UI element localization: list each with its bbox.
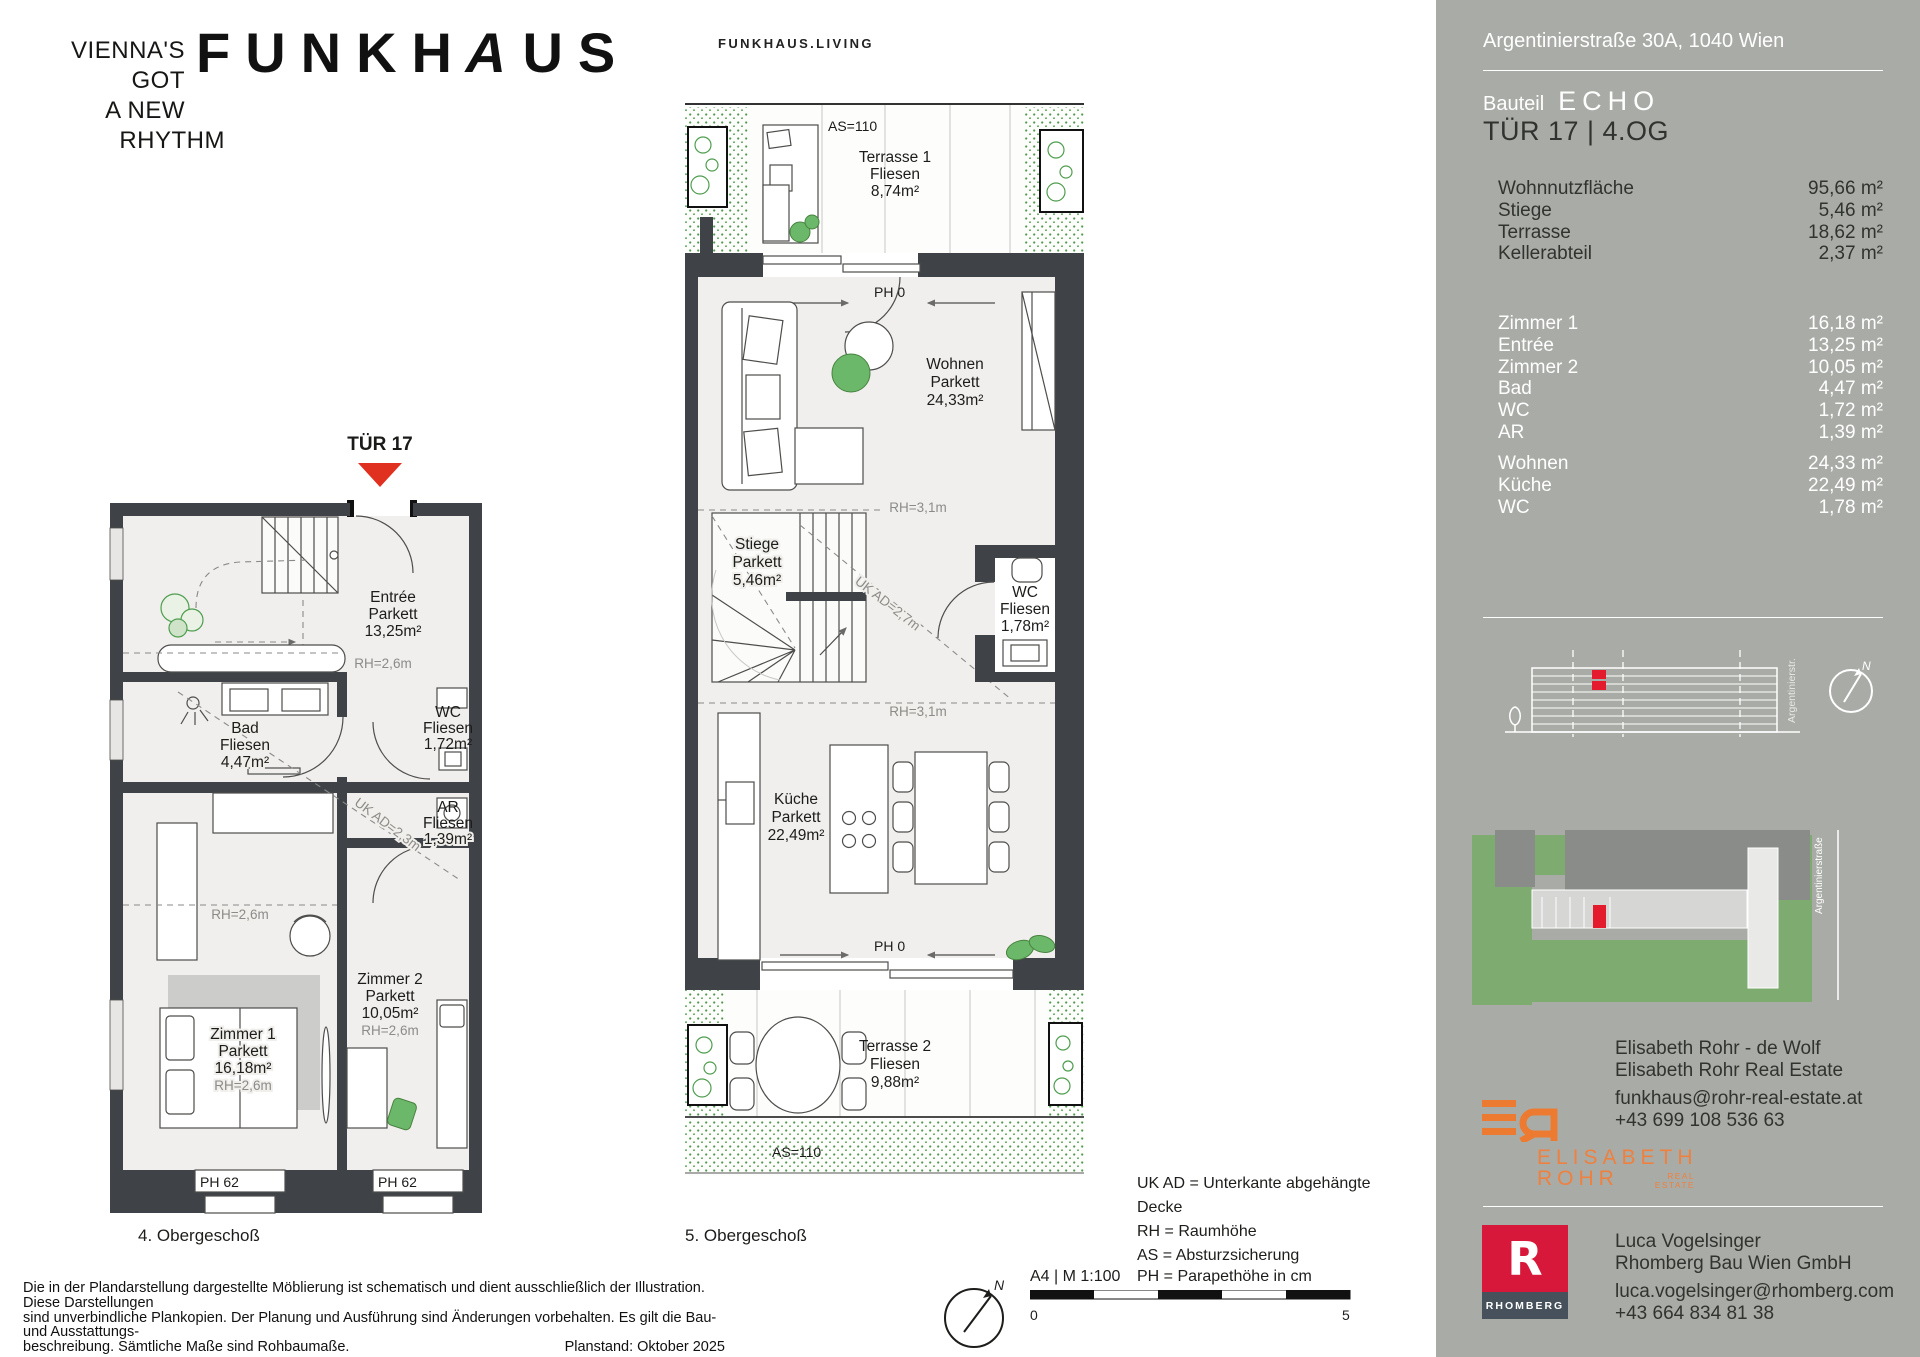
stair-4og xyxy=(262,517,338,593)
contact-name: Elisabeth Rohr - de Wolf xyxy=(1615,1038,1843,1060)
area-label: Stiege xyxy=(1498,200,1552,222)
funkhaus-logo: FUNKHAUS xyxy=(196,20,630,85)
room-label: 13,25m² xyxy=(365,623,422,640)
tuer17-marker-triangle-icon xyxy=(358,463,402,487)
room-label: Fliesen xyxy=(870,166,920,183)
room-label: WC xyxy=(1012,584,1038,601)
divider xyxy=(1483,617,1883,618)
room-label: Fliesen xyxy=(870,1056,920,1073)
rh-label: RH=2,6m xyxy=(211,907,268,922)
table-row: Entrée13,25 m² xyxy=(1498,335,1883,357)
ph-label: PH 0 xyxy=(874,938,905,954)
table-row: AR1,39 m² xyxy=(1498,422,1883,444)
elisabeth-rohr-logo-icon xyxy=(1482,1096,1564,1142)
room-label: 1,72m² xyxy=(424,736,472,753)
room-label: Parkett xyxy=(732,554,782,571)
area-value: 4,47 m² xyxy=(1819,378,1883,400)
legend-line: AS = Absturzsicherung xyxy=(1137,1244,1371,1268)
room-label: Parkett xyxy=(365,988,415,1005)
ph-label: PH 0 xyxy=(874,284,905,300)
room-label: Fliesen xyxy=(423,720,473,737)
area-value: 13,25 m² xyxy=(1808,335,1883,357)
scale-end-label: 5 xyxy=(1342,1307,1350,1323)
room-label: 22,49m² xyxy=(768,827,825,844)
area-value: 1,78 m² xyxy=(1819,497,1883,519)
room-label: Fliesen xyxy=(1000,601,1050,618)
rh-label: RH=3,1m xyxy=(889,500,946,515)
sliding-door-top xyxy=(763,256,920,272)
contact-company: Elisabeth Rohr Real Estate xyxy=(1615,1060,1843,1082)
area-label: AR xyxy=(1498,422,1524,444)
area-label: Terrasse xyxy=(1498,222,1571,244)
disclaimer-line: sind unverbindliche Plankopien. Der Plan… xyxy=(23,1311,725,1341)
rhomberg-logo-label: RHOMBERG xyxy=(1482,1292,1568,1319)
legend-line: PH = Parapethöhe in cm xyxy=(1137,1268,1312,1286)
room-label: 8,74m² xyxy=(871,183,919,200)
sideboard xyxy=(158,645,345,672)
table-row: Stiege5,46 m² xyxy=(1498,200,1883,222)
scale-bar: 0 5 xyxy=(1030,1290,1352,1332)
room-label: Parkett xyxy=(218,1043,268,1060)
planting-band xyxy=(685,1119,1084,1173)
area-label: Zimmer 1 xyxy=(1498,313,1578,335)
room-label: Fliesen xyxy=(220,737,270,754)
area-value: 5,46 m² xyxy=(1819,200,1883,222)
unit-title: TÜR 17 | 4.OG xyxy=(1483,116,1883,147)
room-label: 4,47m² xyxy=(221,754,269,771)
compass-icon: N xyxy=(1830,659,1872,712)
area-label: Wohnen xyxy=(1498,453,1568,475)
logo-slanted-a: A xyxy=(460,20,529,85)
ph-label: PH 62 xyxy=(200,1174,239,1190)
logo-text: US xyxy=(522,21,630,84)
table-row: Kellerabteil2,37 m² xyxy=(1498,243,1883,265)
area-value: 22,49 m² xyxy=(1808,475,1883,497)
street-label: Argentinierstr. xyxy=(1786,658,1798,723)
room-label: Wohnen xyxy=(926,356,983,373)
tree-icon xyxy=(1510,707,1521,732)
floorplan-5og: AS=110 Terrasse 1 Fliesen 8,74m² PH 0 Wo… xyxy=(650,95,1110,1260)
rhomberg-logo: R RHOMBERG xyxy=(1482,1225,1568,1319)
area-value: 24,33 m² xyxy=(1808,453,1883,475)
table-row: WC1,72 m² xyxy=(1498,400,1883,422)
table-row: Wohnen24,33 m² xyxy=(1498,453,1883,475)
terrace1-lounge xyxy=(763,125,819,243)
caption-4og: 4. Obergeschoß xyxy=(138,1226,260,1246)
rh-label: RH=2,6m xyxy=(354,656,411,671)
area-label: Kellerabteil xyxy=(1498,243,1592,265)
bauteil-name: ECHO xyxy=(1558,86,1660,117)
room-label: 16,18m² xyxy=(215,1060,272,1077)
room-label: AR xyxy=(437,799,459,816)
room-label: Bad xyxy=(231,720,259,737)
rhomberg-r-icon: R xyxy=(1482,1225,1568,1292)
room-label: Stiege xyxy=(735,536,779,553)
contact-email[interactable]: funkhaus@rohr-real-estate.at xyxy=(1615,1088,1862,1110)
table-row: Zimmer 116,18 m² xyxy=(1498,313,1883,335)
bauteil-label: Bauteil xyxy=(1483,93,1544,116)
rh-label: RH=2,6m xyxy=(214,1078,271,1093)
as-label: AS=110 xyxy=(772,1144,821,1160)
area-value: 18,62 m² xyxy=(1808,222,1883,244)
legend-line: Decke xyxy=(1137,1196,1371,1220)
street-label: Argentinierstraße xyxy=(1814,837,1825,914)
room-label: Parkett xyxy=(930,374,980,391)
tagline-line: GOT xyxy=(33,66,185,96)
table-row: Zimmer 210,05 m² xyxy=(1498,357,1883,379)
floorplan-4og: TÜR 17 xyxy=(95,420,505,1260)
contact-company: Rhomberg Bau Wien GmbH xyxy=(1615,1253,1852,1275)
legend-line: RH = Raumhöhe xyxy=(1137,1220,1371,1244)
north-compass-icon: N xyxy=(936,1276,1016,1354)
north-label: N xyxy=(1862,659,1871,673)
bauteil-row: Bauteil ECHO xyxy=(1483,86,1883,117)
contact-name: Luca Vogelsinger xyxy=(1615,1231,1852,1253)
tagline: VIENNA'S GOT A NEW RHYTHM xyxy=(33,36,185,156)
areas-rooms2-table: Wohnen24,33 m² Küche22,49 m² WC1,78 m² xyxy=(1498,453,1883,518)
plan-date: Planstand: Oktober 2025 xyxy=(565,1340,725,1355)
er-wordmark-line: ROHR xyxy=(1537,1169,1619,1189)
room-label: Entrée xyxy=(370,589,416,606)
tagline-line: VIENNA'S xyxy=(33,36,185,66)
room-label: 9,88m² xyxy=(871,1074,919,1091)
table-row: Bad4,47 m² xyxy=(1498,378,1883,400)
room-label: 24,33m² xyxy=(927,392,984,409)
table-row: Wohnnutzfläche95,66 m² xyxy=(1498,178,1883,200)
area-label: Wohnnutzfläche xyxy=(1498,178,1634,200)
room-label: Fliesen xyxy=(423,815,473,832)
north-label: N xyxy=(994,1277,1005,1293)
legend-line: UK AD = Unterkante abgehängte xyxy=(1137,1172,1371,1196)
tagline-line: A NEW xyxy=(33,96,185,126)
room-label: Zimmer 1 xyxy=(210,1026,275,1043)
contact-builder-details: luca.vogelsinger@rhomberg.com +43 664 83… xyxy=(1615,1281,1894,1325)
area-label: Bad xyxy=(1498,378,1532,400)
areas-rooms-table: Zimmer 116,18 m² Entrée13,25 m² Zimmer 2… xyxy=(1498,313,1883,444)
room-label: Küche xyxy=(774,791,818,808)
unit-marker-elevation xyxy=(1592,670,1606,679)
area-value: 95,66 m² xyxy=(1808,178,1883,200)
disclaimer-line: Die in der Plandarstellung dargestellte … xyxy=(23,1281,725,1311)
room-label: Parkett xyxy=(368,606,418,623)
table-row: Terrasse18,62 m² xyxy=(1498,222,1883,244)
as-label: AS=110 xyxy=(828,118,877,134)
room-label: 1,78m² xyxy=(1001,618,1049,635)
address: Argentinierstraße 30A, 1040 Wien xyxy=(1483,30,1883,53)
unit-marker-elevation xyxy=(1592,681,1606,690)
areas-main-table: Wohnnutzfläche95,66 m² Stiege5,46 m² Ter… xyxy=(1498,178,1883,265)
funkhaus-living-label: FUNKHAUS.LIVING xyxy=(718,36,874,51)
room-label: WC xyxy=(435,704,461,721)
room-label: Terrasse 2 xyxy=(859,1038,931,1055)
area-value: 2,37 m² xyxy=(1819,243,1883,265)
elisabeth-rohr-wordmark: ELISABETH ROHR REAL ESTATE xyxy=(1537,1147,1698,1189)
area-label: Zimmer 2 xyxy=(1498,357,1578,379)
area-value: 1,72 m² xyxy=(1819,400,1883,422)
divider xyxy=(1483,70,1883,71)
contact-phone[interactable]: +43 664 834 81 38 xyxy=(1615,1303,1894,1325)
room-label: Parkett xyxy=(771,809,821,826)
room-label: Terrasse 1 xyxy=(859,149,931,166)
tuer17-marker-label: TÜR 17 xyxy=(347,434,412,455)
area-value: 16,18 m² xyxy=(1808,313,1883,335)
site-plan-diagram: Argentinierstraße xyxy=(1470,822,1890,1007)
sliding-door-bottom xyxy=(762,962,1013,978)
disclaimer-line: beschreibung. Sämtliche Maße sind Rohbau… xyxy=(23,1340,349,1355)
legend: UK AD = Unterkante abgehängte Decke RH =… xyxy=(1137,1172,1371,1268)
info-sidebar: Argentinierstraße 30A, 1040 Wien Bauteil… xyxy=(1436,0,1920,1357)
area-value: 10,05 m² xyxy=(1808,357,1883,379)
area-label: WC xyxy=(1498,400,1530,422)
contact-agent-details: funkhaus@rohr-real-estate.at +43 699 108… xyxy=(1615,1088,1862,1132)
disclaimer: Die in der Plandarstellung dargestellte … xyxy=(23,1281,725,1355)
area-label: WC xyxy=(1498,497,1530,519)
table-row: Küche22,49 m² xyxy=(1498,475,1883,497)
caption-5og: 5. Obergeschoß xyxy=(685,1226,807,1246)
logo-text: FUNKH xyxy=(196,21,467,84)
divider xyxy=(1483,1206,1883,1207)
room-label: Zimmer 2 xyxy=(357,971,422,988)
area-label: Küche xyxy=(1498,475,1552,497)
contact-agent-block: Elisabeth Rohr - de Wolf Elisabeth Rohr … xyxy=(1615,1038,1843,1081)
ph-label: PH 62 xyxy=(378,1174,417,1190)
floorplan-page: { "header": { "tagline": ["VIENNA'S", "G… xyxy=(0,0,1920,1357)
format-scale-label: A4 | M 1:100 xyxy=(1030,1268,1120,1286)
area-label: Entrée xyxy=(1498,335,1554,357)
er-wordmark-small: ESTATE xyxy=(1655,1180,1695,1190)
scale-start-label: 0 xyxy=(1030,1307,1038,1323)
er-wordmark-line: ELISABETH xyxy=(1537,1147,1698,1169)
area-value: 1,39 m² xyxy=(1819,422,1883,444)
rh-label: RH=2,6m xyxy=(361,1023,418,1038)
building-elevation-diagram: Argentinierstr. N xyxy=(1470,645,1890,750)
room-label: 1,39m² xyxy=(424,831,472,848)
contact-phone[interactable]: +43 699 108 536 63 xyxy=(1615,1110,1862,1132)
unit-marker-siteplan xyxy=(1593,905,1606,928)
contact-email[interactable]: luca.vogelsinger@rhomberg.com xyxy=(1615,1281,1894,1303)
rh-label: RH=3,1m xyxy=(889,704,946,719)
room-label: 10,05m² xyxy=(362,1005,419,1022)
tagline-line: RHYTHM xyxy=(33,126,225,156)
contact-builder-block: Luca Vogelsinger Rhomberg Bau Wien GmbH xyxy=(1615,1231,1852,1274)
room-label: 5,46m² xyxy=(733,572,781,589)
table-row: WC1,78 m² xyxy=(1498,497,1883,519)
